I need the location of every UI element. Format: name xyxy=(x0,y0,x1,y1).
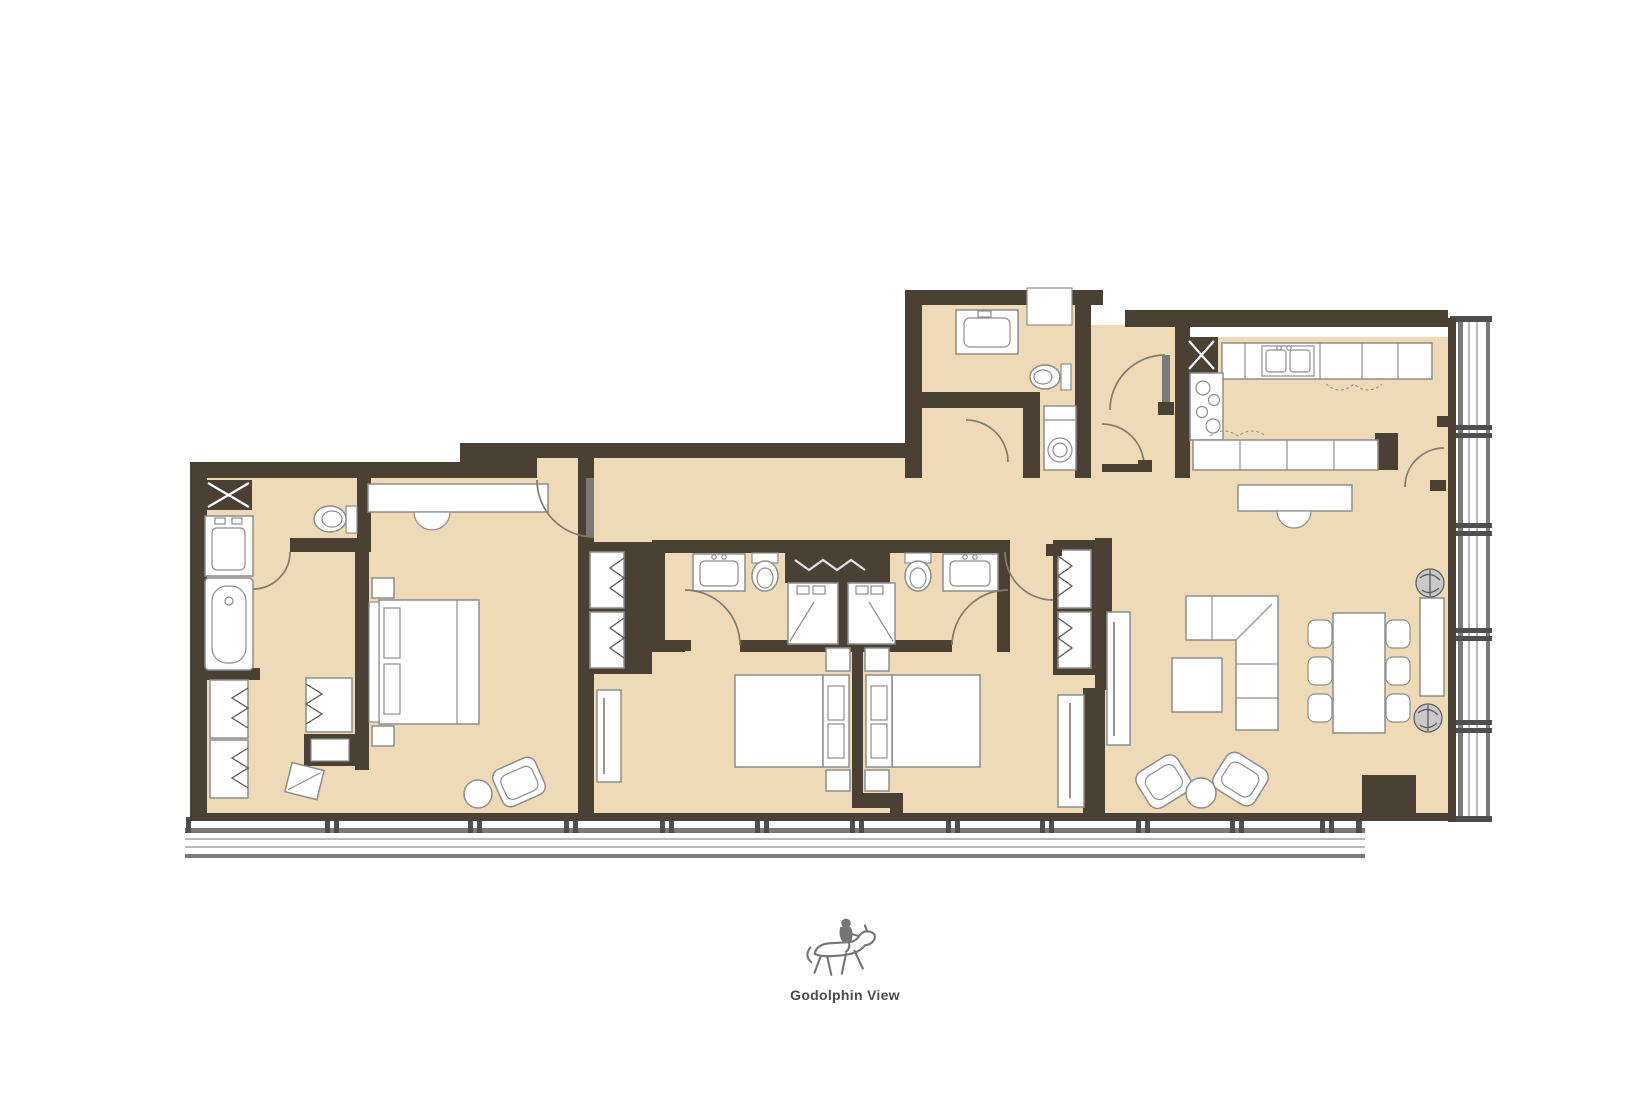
toilet-master xyxy=(314,506,357,533)
closet xyxy=(210,680,248,738)
brand-logo: Godolphin View xyxy=(790,919,900,1003)
closet xyxy=(210,740,248,798)
bench xyxy=(1420,598,1444,696)
dining-chair xyxy=(1308,620,1332,648)
toilet xyxy=(905,553,931,591)
dining-chair xyxy=(1386,620,1410,648)
closet xyxy=(1058,612,1091,668)
door-leaf xyxy=(586,478,594,536)
floor-plan: Godolphin View xyxy=(0,0,1650,1100)
plant xyxy=(1414,704,1442,732)
floorplan-page: Godolphin View xyxy=(0,0,1650,1100)
entry-niche xyxy=(1027,288,1072,325)
toilet xyxy=(1030,364,1071,390)
dining-chair xyxy=(1386,657,1410,685)
counter-west xyxy=(1190,373,1223,440)
coffee-table xyxy=(1172,658,1222,712)
window-band-south xyxy=(185,817,1365,858)
dining-chair xyxy=(1308,657,1332,685)
tall-unit xyxy=(1185,337,1218,373)
tv-console xyxy=(597,690,621,782)
dining-chair xyxy=(1386,694,1410,722)
horse-rider-icon xyxy=(807,919,874,975)
dresser xyxy=(368,484,548,512)
toilet xyxy=(752,553,778,591)
laundry-closet xyxy=(1044,406,1076,470)
dresser xyxy=(304,734,356,766)
logo-caption: Godolphin View xyxy=(790,987,900,1003)
vanity-sink xyxy=(693,554,745,591)
bed-master xyxy=(369,578,479,746)
dining-chair xyxy=(1308,694,1332,722)
tv-console xyxy=(1107,612,1130,745)
tv-console xyxy=(1058,695,1084,807)
vanity-sink xyxy=(205,516,253,576)
closet xyxy=(306,678,352,732)
plant xyxy=(1416,569,1444,597)
shower-unit xyxy=(205,480,252,510)
closet xyxy=(590,552,624,608)
shower xyxy=(788,583,838,644)
side-table xyxy=(1186,778,1216,808)
dining-table xyxy=(1333,613,1385,733)
kitchen-sink xyxy=(1262,346,1314,376)
side-table xyxy=(464,780,492,808)
vanity-sink xyxy=(943,554,998,591)
closet xyxy=(590,612,624,668)
shower xyxy=(848,583,895,644)
dining-set xyxy=(1308,613,1410,733)
window-band-east xyxy=(1450,316,1492,822)
bathtub xyxy=(205,578,253,670)
